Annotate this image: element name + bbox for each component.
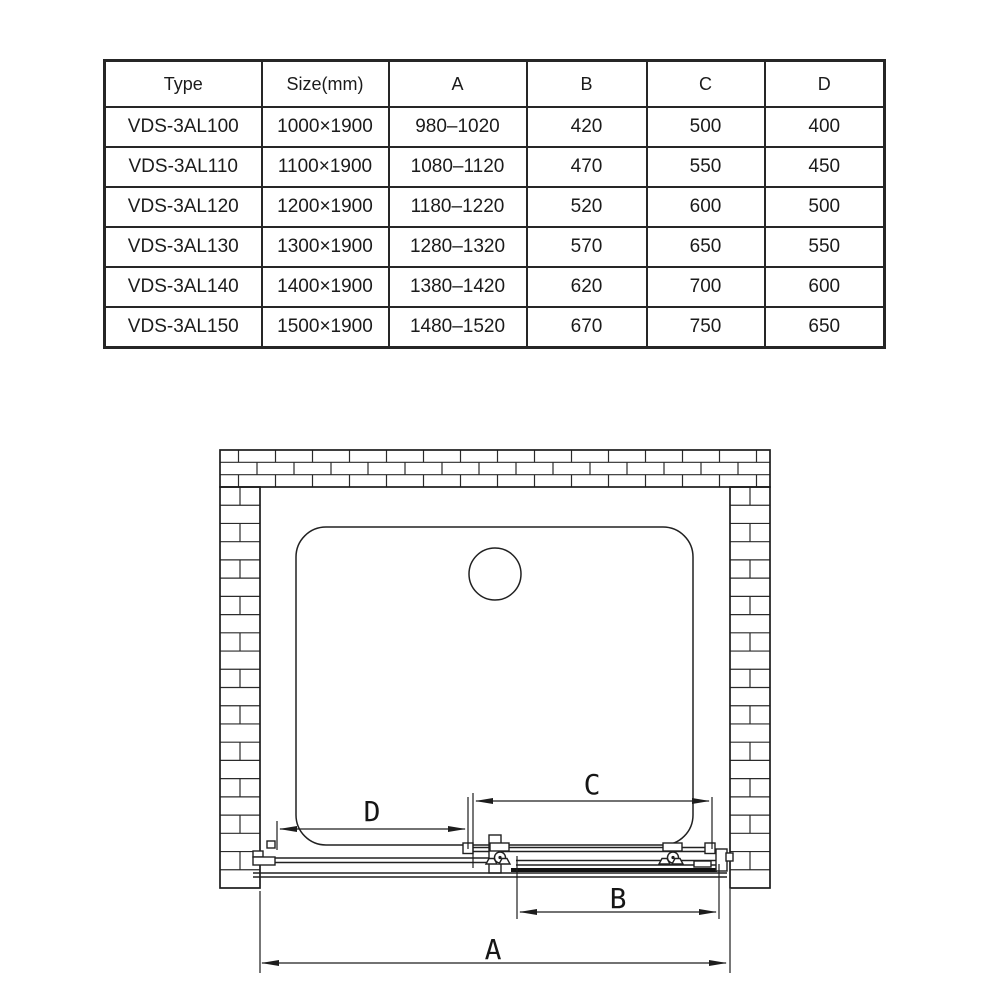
- shower-tray: [296, 527, 693, 845]
- dimension-label-c: C: [584, 768, 601, 801]
- dimension-label-d: D: [364, 795, 381, 828]
- installation-diagram: C D B A: [0, 0, 1000, 1000]
- shower-door-spec-sheet: TypeSize(mm)ABCD VDS-3AL1001000×1900980–…: [0, 0, 1000, 1000]
- dimension-label-a: A: [485, 933, 502, 966]
- threshold: [253, 873, 727, 877]
- rail-end-cap-right: [705, 843, 715, 854]
- fixed-panel: [262, 856, 491, 864]
- dimension-d: D: [277, 795, 468, 850]
- roller-carriage-center: [486, 835, 510, 873]
- door-rail-assembly: [253, 835, 733, 877]
- dimension-label-b: B: [610, 882, 627, 915]
- drain-circle: [469, 548, 521, 600]
- dimension-a: A: [260, 889, 730, 973]
- wall-bracket-left: [253, 841, 275, 865]
- brick-wall-pattern: [220, 450, 770, 870]
- sliding-panel: [511, 861, 717, 871]
- wall-outline: [220, 450, 770, 888]
- roller-carriage-right: [659, 843, 683, 864]
